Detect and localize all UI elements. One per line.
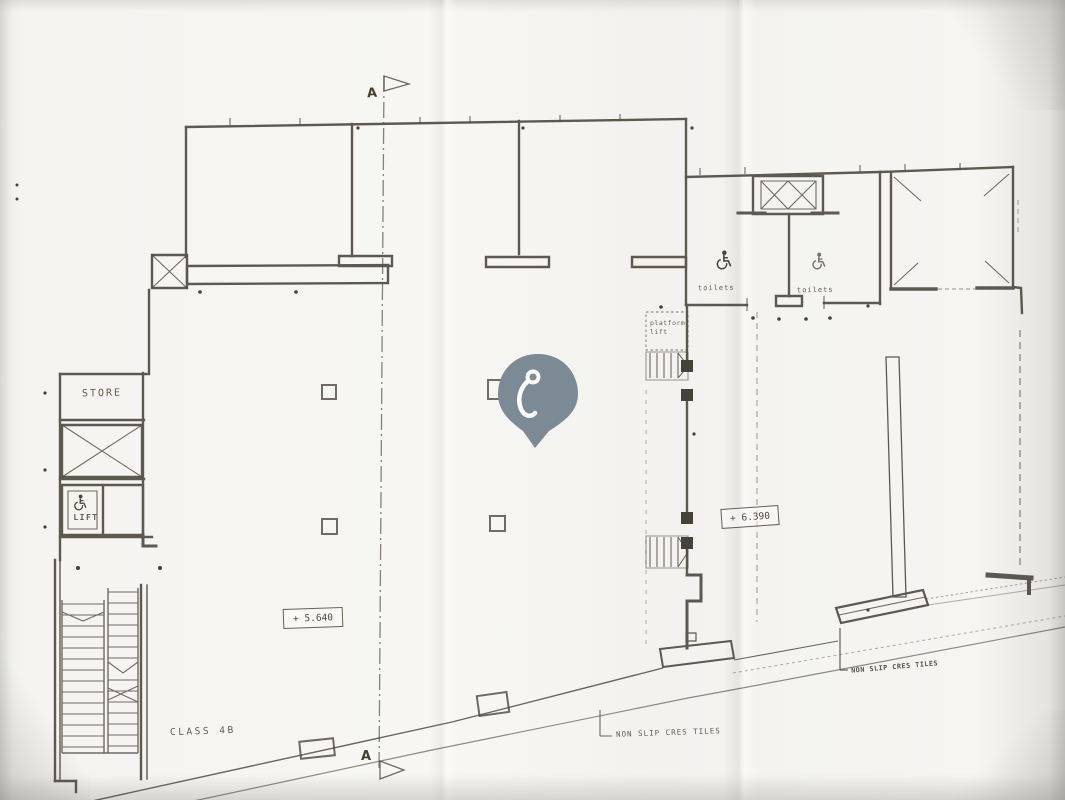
- section-marker-a-top: A: [366, 86, 377, 102]
- platform-lift-label: platformlift: [650, 319, 685, 337]
- section-marker-a-bottom: A: [361, 749, 371, 764]
- wheelchair-icon: [810, 252, 826, 270]
- platform-lift-line1: platform: [650, 319, 685, 327]
- platform-lift-line2: lift: [650, 328, 668, 336]
- toilets-left-label: toilets: [698, 284, 735, 293]
- toilets-right-label: toilets: [797, 286, 834, 295]
- wheelchair-icon: [714, 250, 732, 270]
- staircase: [62, 588, 138, 753]
- classroom-label: CLASS 4B: [170, 725, 236, 738]
- level-marker-upper: + 6.390: [720, 505, 779, 529]
- wheelchair-icon: [72, 494, 87, 511]
- store-room-label: STORE: [70, 387, 134, 399]
- floor-plan-scan: STORE LIFT CLASS 4B toilets toilets plat…: [0, 0, 1065, 800]
- reference-lines: [379, 76, 1065, 772]
- map-pin-body[interactable]: [498, 354, 578, 448]
- map-pin[interactable]: [495, 352, 581, 450]
- columns: [299, 380, 509, 759]
- walls: [55, 119, 1031, 792]
- level-marker-main: + 5.640: [283, 607, 344, 629]
- lift-room-label: LIFT: [66, 513, 106, 522]
- frontage-lines: [42, 585, 1065, 800]
